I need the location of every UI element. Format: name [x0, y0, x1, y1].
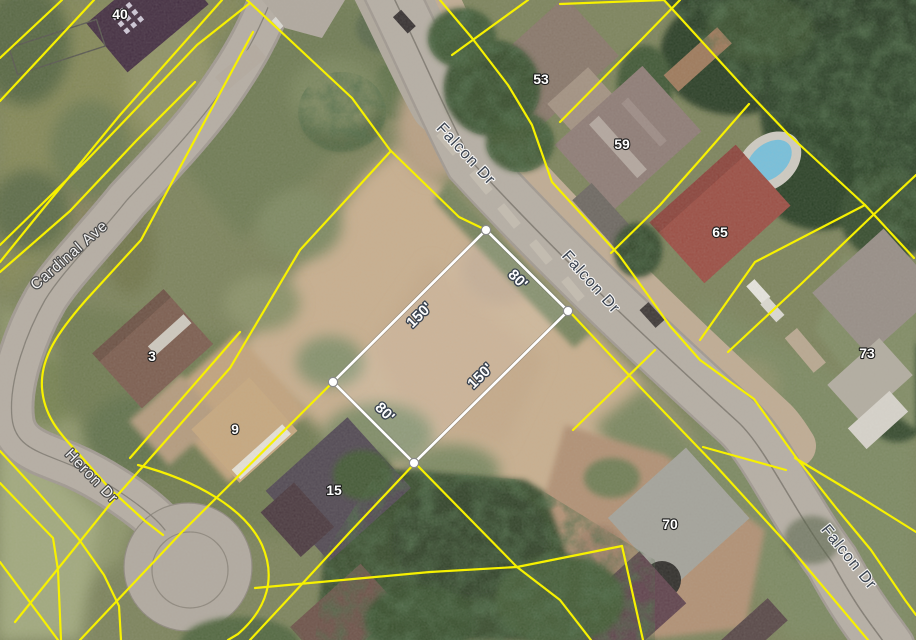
svg-text:59: 59 [614, 136, 630, 152]
svg-text:40: 40 [112, 6, 128, 22]
svg-text:53: 53 [533, 71, 549, 87]
svg-text:3: 3 [148, 348, 156, 364]
svg-text:70: 70 [662, 516, 678, 532]
svg-text:15: 15 [326, 482, 342, 498]
svg-text:65: 65 [712, 224, 728, 240]
svg-text:9: 9 [231, 421, 239, 437]
svg-text:73: 73 [859, 345, 875, 361]
